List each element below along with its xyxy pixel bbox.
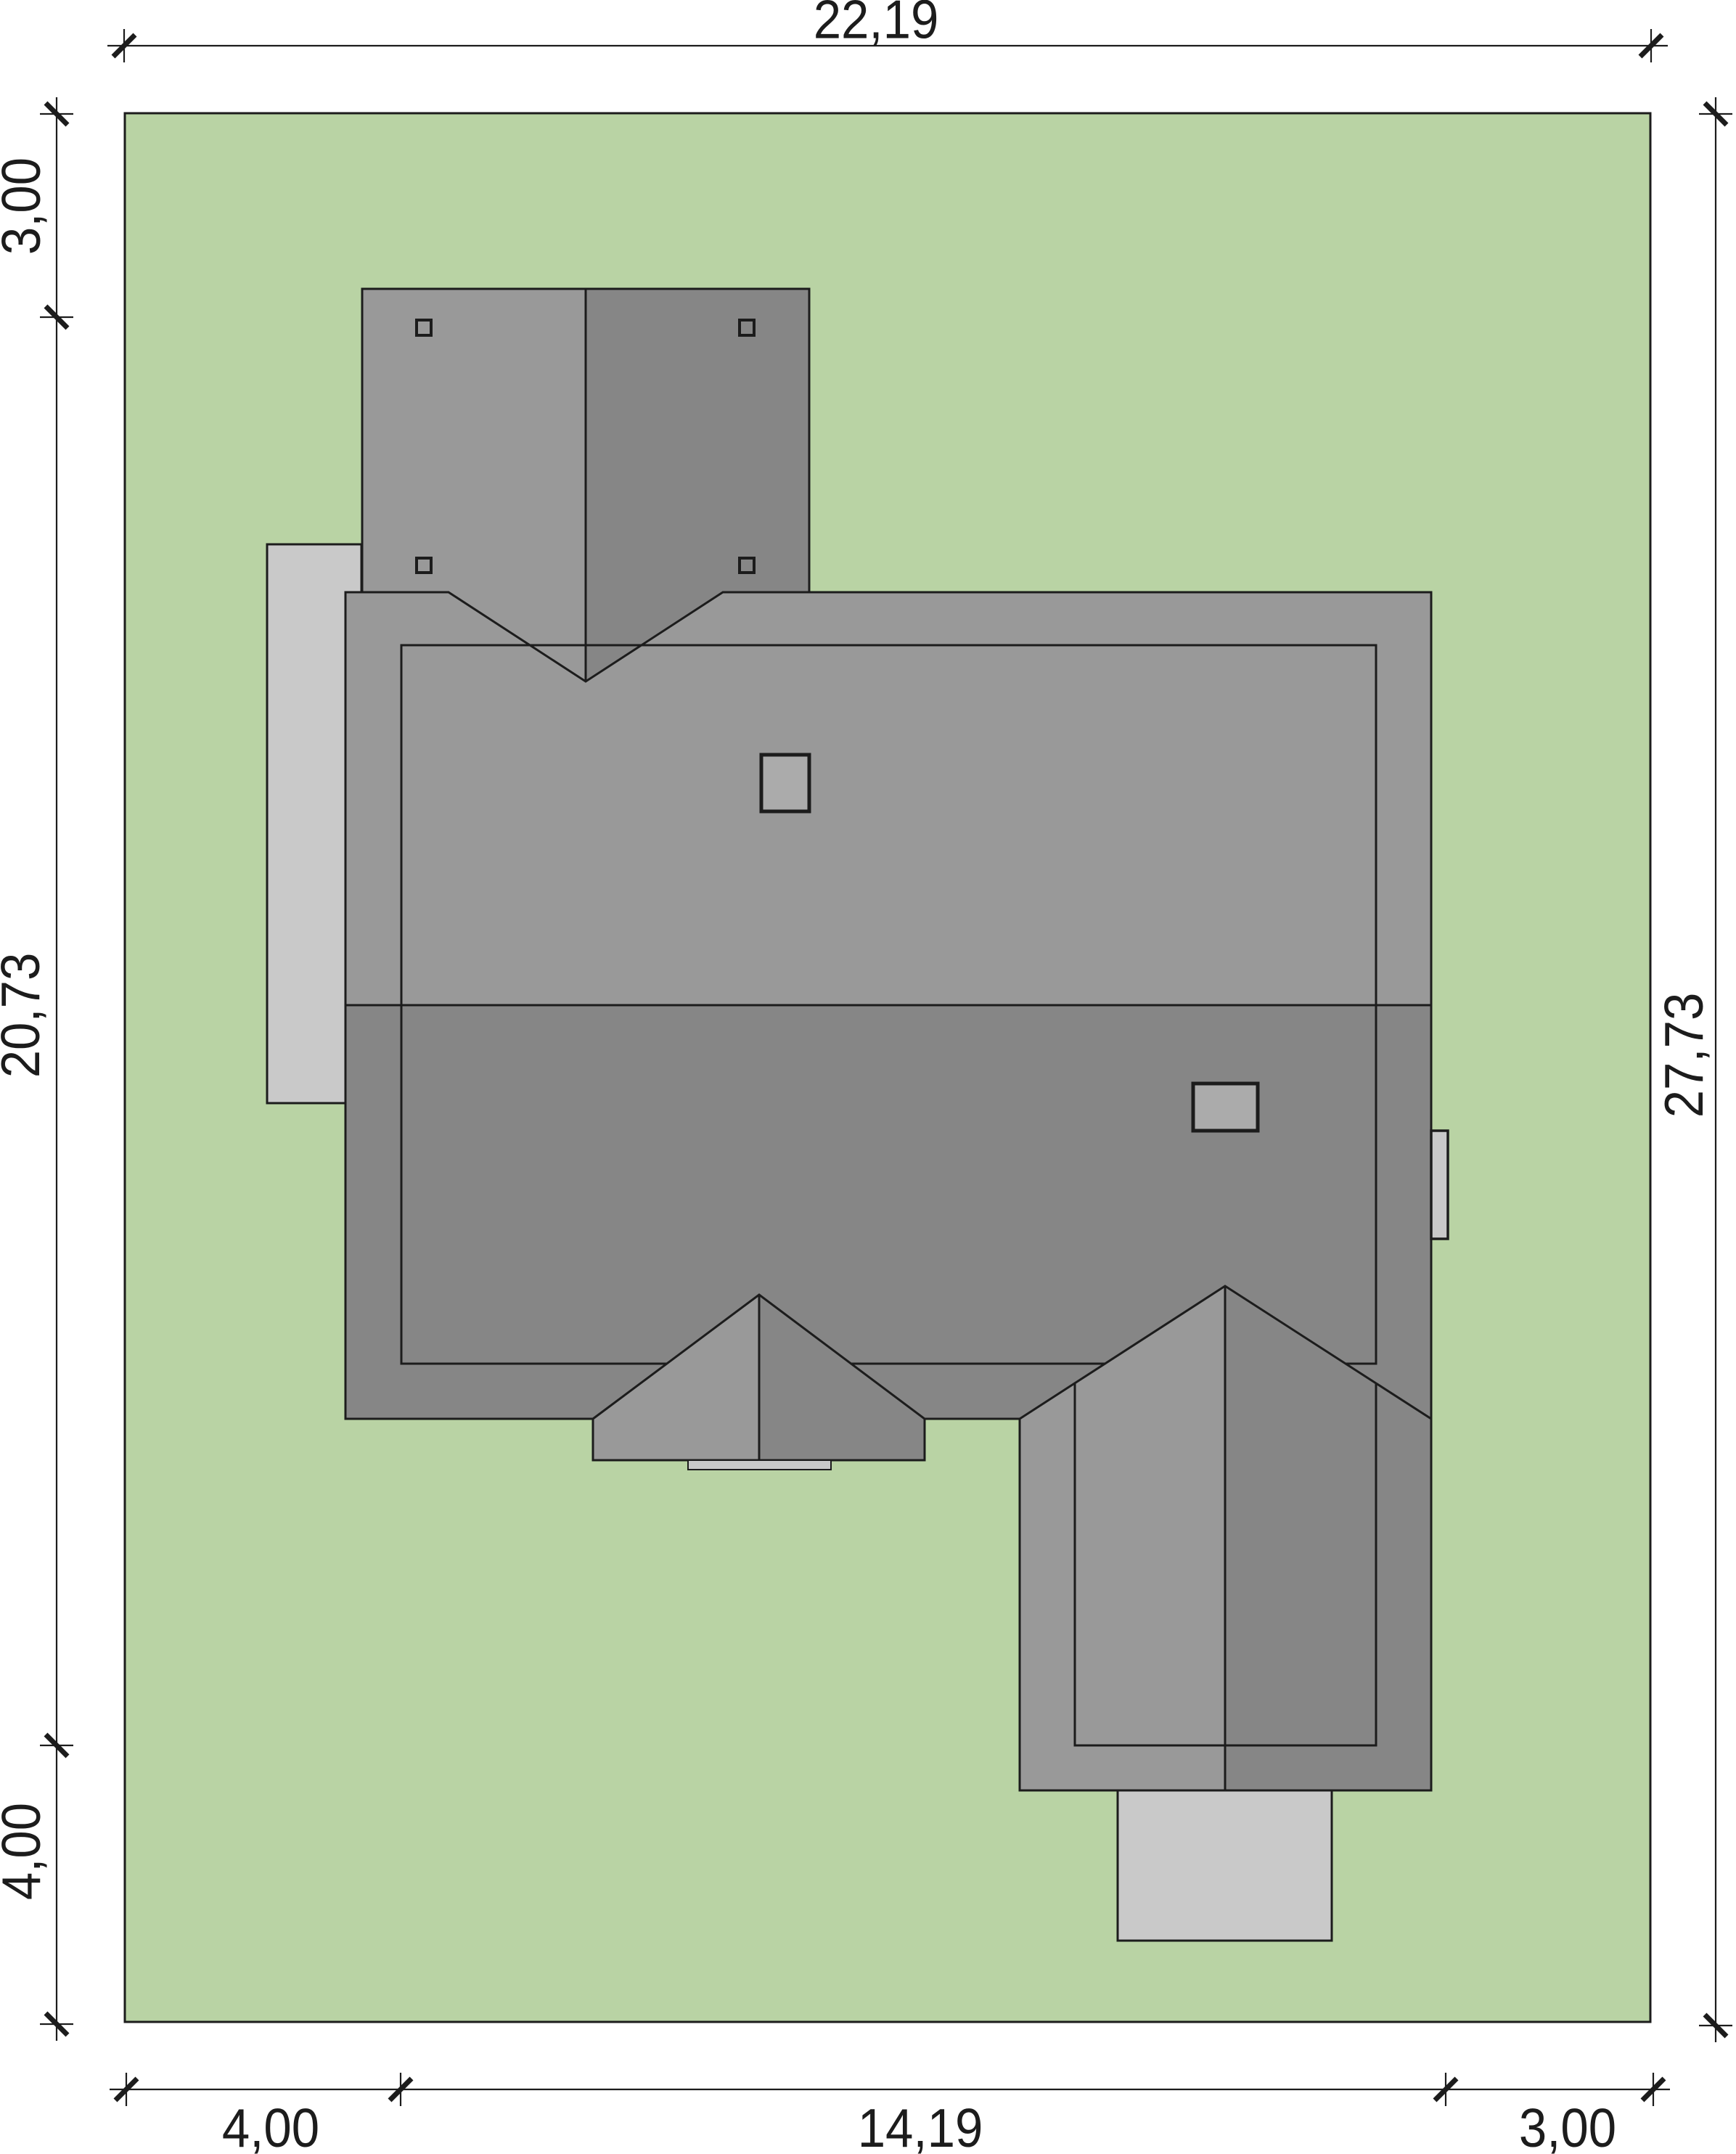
svg-text:22,19: 22,19 (814, 0, 939, 50)
svg-text:20,73: 20,73 (0, 953, 52, 1078)
svg-text:14,19: 14,19 (858, 2098, 983, 2154)
svg-text:3,00: 3,00 (1519, 2098, 1616, 2154)
svg-text:3,00: 3,00 (0, 157, 52, 255)
svg-text:27,73: 27,73 (1654, 993, 1714, 1118)
svg-text:4,00: 4,00 (0, 1803, 52, 1900)
svg-text:4,00: 4,00 (222, 2098, 319, 2154)
